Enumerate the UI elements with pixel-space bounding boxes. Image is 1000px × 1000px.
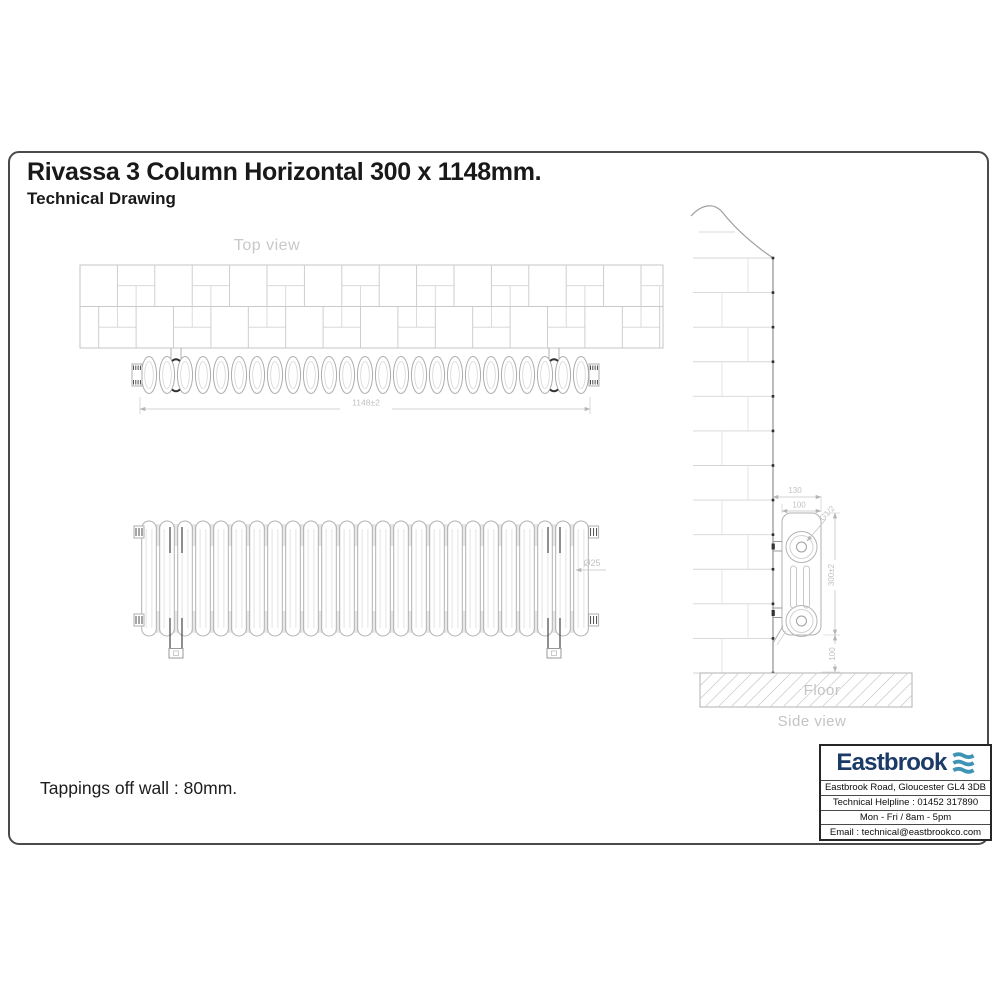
wall-to-front-value: 130 (788, 486, 802, 495)
side-view-label: Side view (778, 713, 847, 730)
page-subtitle: Technical Drawing (27, 189, 176, 209)
page-border (9, 152, 988, 844)
brand-logo-text: Eastbrook (836, 749, 946, 777)
info-address: Eastbrook Road, Gloucester GL4 3DB (821, 780, 990, 795)
technical-drawing-canvas: Top view 1148±2 Ø25 (0, 0, 1000, 1000)
front-view-radiator (134, 521, 599, 658)
info-helpline: Technical Helpline : 01452 317890 (821, 795, 990, 810)
depth-value: 100 (792, 501, 806, 510)
brand-wave-icon (952, 752, 975, 774)
floor-label: Floor (804, 682, 841, 699)
info-email: Email : technical@eastbrookco.com (821, 824, 990, 839)
tappings-note: Tappings off wall : 80mm. (40, 778, 237, 799)
top-view-label: Top view (234, 237, 300, 254)
manufacturer-info-box: Eastbrook Eastbrook Road, Gloucester GL4… (819, 744, 992, 841)
overall-width-value: 1148±2 (352, 398, 380, 408)
height-value: 300±2 (827, 563, 836, 586)
brand-logo: Eastbrook (821, 746, 990, 780)
floor-to-bottom-value: 100 (828, 647, 837, 661)
page-title: Rivassa 3 Column Horizontal 300 x 1148mm… (27, 158, 541, 187)
overall-width-dimension: 1148±2 (140, 397, 590, 414)
side-view-wall-bricks (693, 232, 773, 673)
column-diameter-value: Ø25 (583, 558, 600, 568)
top-view-wall-bricks (80, 265, 663, 348)
top-view-radiator (132, 348, 599, 394)
info-hours: Mon - Fri / 8am - 5pm (821, 810, 990, 825)
technical-drawing-page: Top view 1148±2 Ø25 (0, 0, 1000, 1000)
floor-hatch (666, 673, 934, 707)
